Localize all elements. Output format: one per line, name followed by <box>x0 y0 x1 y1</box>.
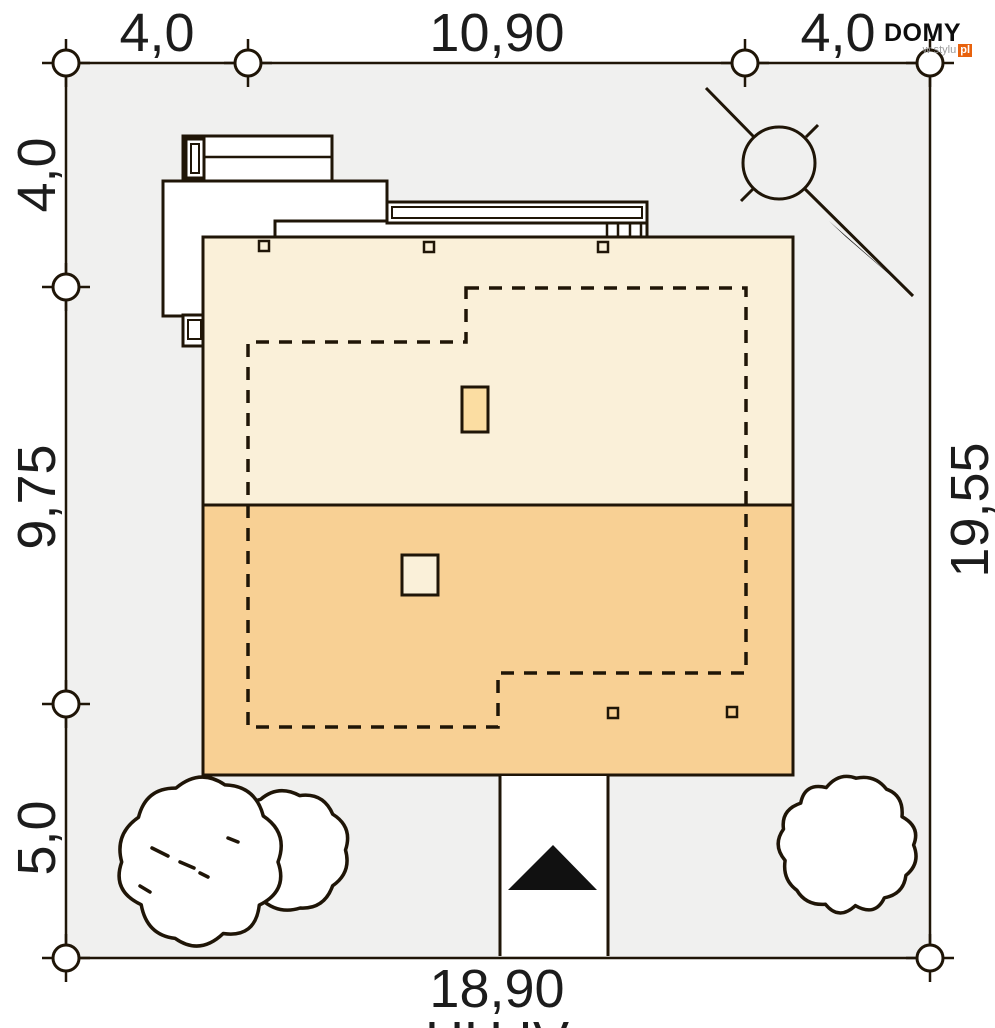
logo-pl-badge: pl <box>958 44 972 57</box>
dim-left-bottom: 5,0 <box>7 800 67 875</box>
dim-top-right: 4,0 <box>800 3 875 63</box>
site-logo: DOMY w stylu pl <box>884 21 984 57</box>
boundary-marker <box>53 274 79 300</box>
dim-bottom: 18,90 <box>429 959 564 1019</box>
logo-domy-text: DOMY <box>884 21 984 46</box>
terrace-structure <box>392 207 642 218</box>
drawing-layer <box>42 39 954 982</box>
roof-lower-half <box>203 505 793 775</box>
boundary-marker <box>53 691 79 717</box>
terrace-structure <box>191 144 199 173</box>
dim-left-top: 4,0 <box>7 137 67 212</box>
boundary-marker <box>732 50 758 76</box>
chimney <box>402 555 438 595</box>
terrace-structure <box>188 320 201 339</box>
logo-wstylu-text: w stylu <box>923 45 957 56</box>
boundary-marker <box>917 945 943 971</box>
site-plan: 4,0 10,90 4,0 4,0 9,75 5,0 19,55 18,90 H… <box>0 0 995 1028</box>
dim-top-center: 10,90 <box>429 3 564 63</box>
dim-right-side: 19,55 <box>940 442 995 577</box>
boundary-marker <box>53 50 79 76</box>
boundary-marker <box>235 50 261 76</box>
dim-top-left: 4,0 <box>119 3 194 63</box>
roof-upper-half <box>203 237 793 505</box>
site-plan-page: 4,0 10,90 4,0 4,0 9,75 5,0 19,55 18,90 H… <box>0 0 995 1028</box>
dim-left-middle: 9,75 <box>7 444 67 549</box>
plan-name-partial: HH IV <box>425 1011 569 1028</box>
chimney <box>462 387 488 432</box>
boundary-marker <box>53 945 79 971</box>
